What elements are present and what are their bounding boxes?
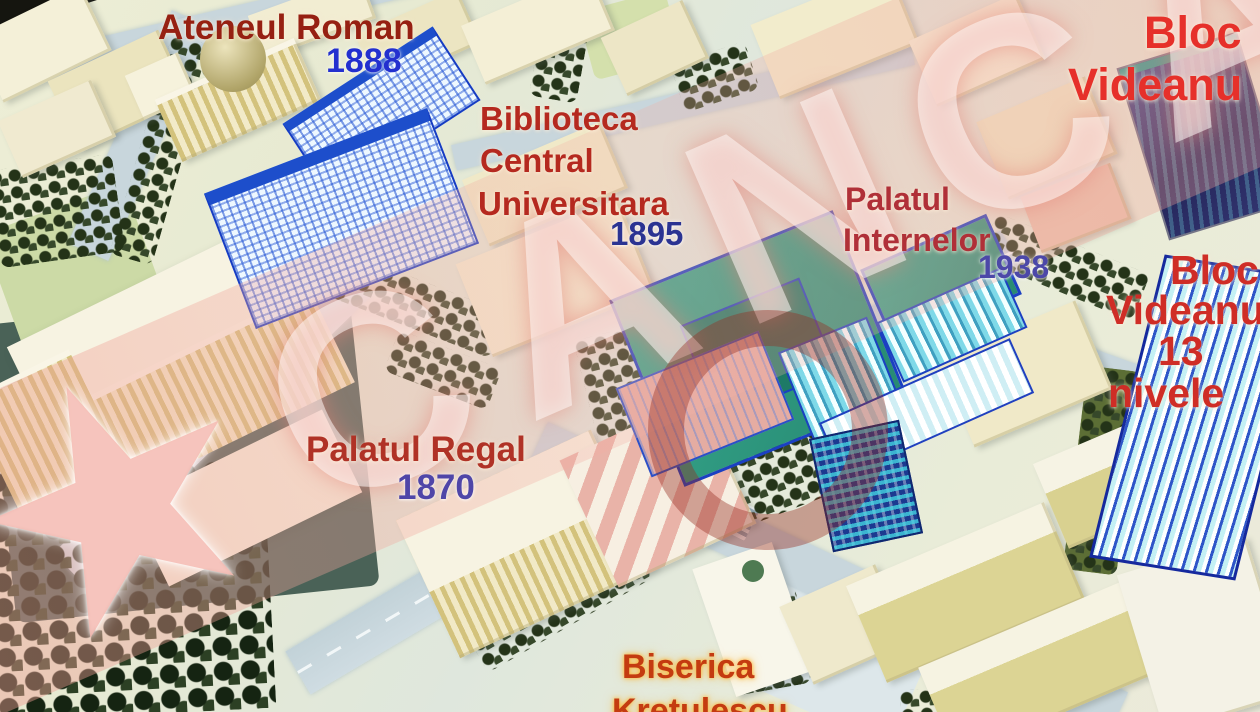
label-videanu-top-line2: Videanu [1068, 62, 1242, 107]
label-videanu-right-line1: Bloc [1170, 250, 1259, 291]
model-building [750, 0, 919, 99]
label-internelor-line2: Internelor [843, 224, 991, 256]
label-videanu-top-line1: Bloc [1144, 10, 1242, 55]
label-biserica-line2: Kretulescu [612, 694, 788, 712]
label-internelor-year: 1938 [978, 251, 1049, 283]
label-palatul-regal-year: 1870 [397, 470, 475, 505]
label-videanu-right-line2: Videanu [1106, 290, 1260, 331]
tree-cluster [0, 154, 125, 268]
label-videanu-right-line4: nivele [1108, 373, 1224, 414]
label-biserica-line1: Biserica [622, 650, 754, 684]
label-biblioteca-line2: Central [480, 144, 594, 177]
model-building [908, 0, 1045, 107]
label-palatul-regal: Palatul Regal [306, 432, 526, 467]
city-model-photo: ★ CANCAN Ateneul Roman 1888 Biblioteca C… [0, 0, 1260, 712]
label-internelor-line1: Palatul [845, 183, 950, 215]
label-videanu-right-line3: 13 [1158, 331, 1204, 372]
church-dome [742, 560, 764, 582]
label-ateneul-year: 1888 [326, 44, 402, 78]
label-biblioteca-line1: Biblioteca [480, 102, 638, 135]
label-ateneul-roman: Ateneul Roman [158, 10, 415, 45]
label-biblioteca-year: 1895 [610, 217, 683, 250]
